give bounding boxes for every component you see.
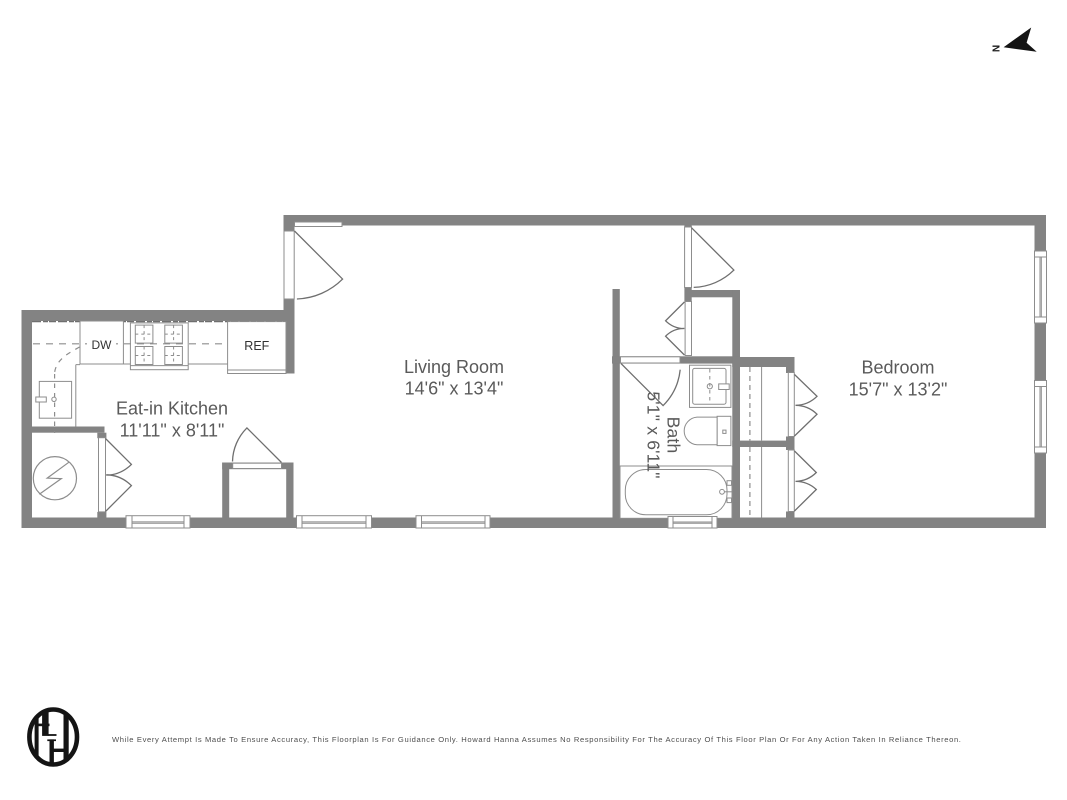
svg-text:5'1" x 6'11": 5'1" x 6'11" <box>644 391 664 478</box>
svg-text:14'6" x 13'4": 14'6" x 13'4" <box>405 379 504 399</box>
svg-text:11'11" x 8'11": 11'11" x 8'11" <box>120 421 225 441</box>
svg-text:15'7" x 13'2": 15'7" x 13'2" <box>849 380 948 400</box>
svg-text:N: N <box>990 45 1001 52</box>
svg-text:While Every Attempt Is Made To: While Every Attempt Is Made To Ensure Ac… <box>112 735 962 744</box>
svg-text:Bedroom: Bedroom <box>861 358 934 378</box>
svg-text:Living Room: Living Room <box>404 357 504 377</box>
svg-text:Eat-in Kitchen: Eat-in Kitchen <box>116 399 228 419</box>
svg-text:Bath: Bath <box>664 417 684 454</box>
svg-text:DW: DW <box>92 338 113 352</box>
svg-text:REF: REF <box>244 339 269 353</box>
